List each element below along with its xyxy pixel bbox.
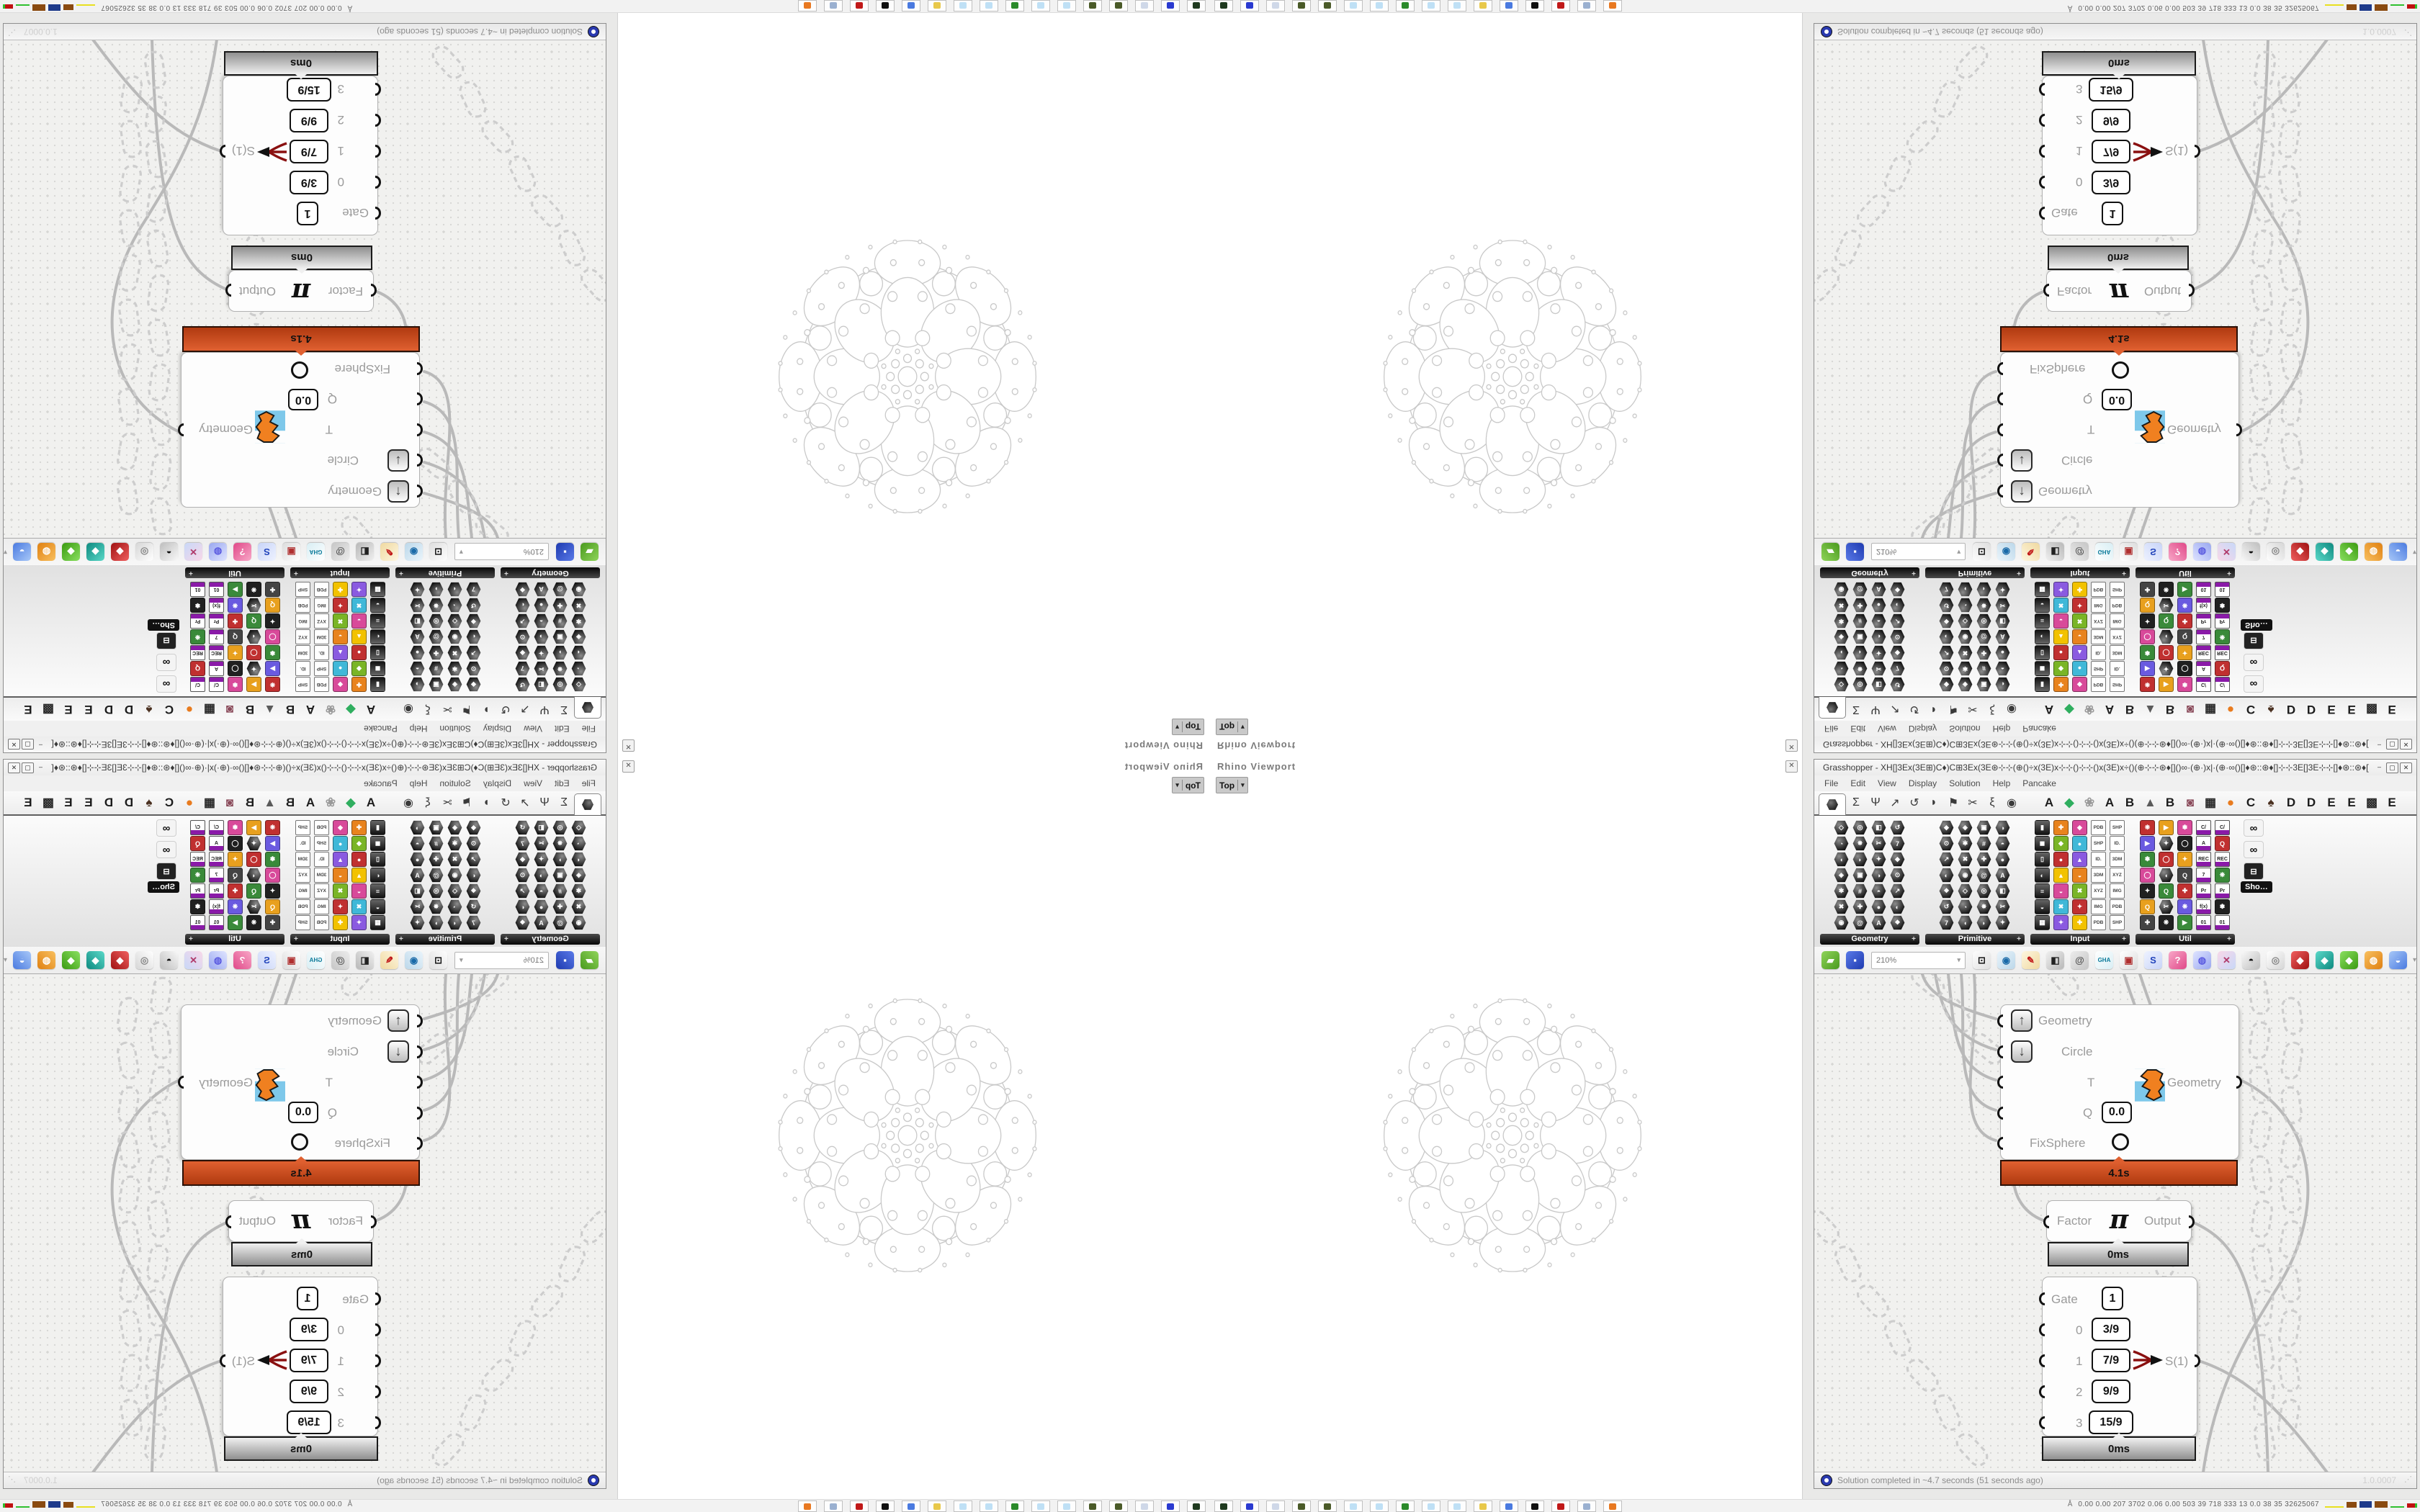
zoom-level-select[interactable]: 210% ▾ — [454, 544, 549, 561]
menu-help[interactable]: Help — [1993, 724, 2011, 734]
zoom-level-select[interactable]: 210% ▾ — [454, 952, 549, 969]
gem-orange-icon[interactable]: ◍ — [2365, 543, 2383, 561]
panel-label[interactable]: Geometry+ — [501, 934, 600, 945]
orange-globe-icon[interactable] — [798, 1500, 817, 1512]
tab-params[interactable] — [1819, 793, 1846, 815]
component-icon[interactable]: ◑ — [410, 820, 425, 835]
component-icon[interactable]: ◓ — [1995, 836, 2010, 851]
component-icon[interactable]: SHP — [295, 915, 310, 930]
component-icon[interactable]: ✽ — [2215, 899, 2230, 914]
component-icon[interactable]: 3DM — [295, 852, 310, 867]
component-icon[interactable]: ≡ — [2035, 883, 2050, 899]
component-icon[interactable]: ◆ — [466, 820, 481, 835]
gem-green-icon[interactable]: ◆ — [62, 543, 80, 561]
tab-plugin-8[interactable]: ▦ — [204, 702, 215, 716]
gate-value-box[interactable]: 1 — [297, 1287, 318, 1310]
component-icon[interactable]: ● — [1995, 645, 2010, 660]
component-icon[interactable]: REC — [2196, 852, 2211, 867]
tab-category-8[interactable]: ◉ — [2006, 702, 2017, 716]
red-gem-icon[interactable]: ◆ — [2291, 951, 2309, 969]
tab-category-2[interactable]: ↗ — [1889, 796, 1901, 810]
component-icon[interactable]: ◐ — [515, 899, 530, 914]
menu-display[interactable]: Display — [1909, 778, 1937, 788]
component-icon[interactable]: REC — [2215, 645, 2230, 660]
tab-category-7[interactable]: ξ — [422, 703, 434, 716]
component-icon[interactable]: C/ — [2215, 677, 2230, 692]
component-icon[interactable]: ◧ — [1871, 820, 1886, 835]
row-value-box[interactable]: 9/9 — [290, 1380, 328, 1403]
goggles-icon[interactable]: ∞ — [156, 819, 176, 837]
component-icon[interactable]: ▯ — [2035, 852, 2050, 867]
output-grip-geometry[interactable] — [2236, 423, 2242, 436]
tab-category-5[interactable]: ⚑ — [461, 702, 472, 716]
titlebar[interactable]: Grasshopper - XH[]3Ex(3E⊞)C♦)C⊞3Ex(3E⊛⊹⊹… — [4, 760, 606, 775]
panel-label[interactable]: Geometry+ — [1820, 934, 1919, 945]
red-gem-icon[interactable]: ◆ — [2291, 543, 2309, 561]
component-icon[interactable]: ● — [351, 645, 367, 660]
component-icon[interactable]: ✦ — [1871, 852, 1886, 867]
black-bird-icon[interactable] — [876, 0, 895, 12]
input-grip-2[interactable] — [2039, 1385, 2045, 1398]
component-stream-gate[interactable]: Gate 1 0 3/9 1 7/9 S(1) 2 9/9 3 15/9 — [2042, 1277, 2197, 1436]
component-icon[interactable]: SHP — [2110, 820, 2125, 835]
sketch-pen-icon[interactable]: ✎ — [380, 543, 398, 561]
tab-plugin-10[interactable]: C — [2245, 796, 2257, 810]
projector-screen-icon[interactable]: ⊟ — [2244, 632, 2264, 649]
q-value-box[interactable]: 0.0 — [2102, 389, 2132, 410]
tab-category-1[interactable]: Ψ — [539, 796, 550, 809]
monitor-dialog-icon[interactable] — [902, 0, 920, 12]
component-icon[interactable]: ◇ — [571, 820, 586, 835]
component-icon[interactable]: ❋ — [265, 677, 280, 692]
minimize-button[interactable]: – — [35, 762, 46, 772]
viewport-view-dropdown[interactable]: Top ▾ — [1172, 777, 1204, 793]
viewport-view-dropdown[interactable]: Top ▾ — [1172, 719, 1204, 735]
component-icon[interactable]: REC — [209, 852, 224, 867]
component-icon[interactable]: ❋ — [2215, 868, 2230, 883]
component-icon[interactable]: Pr — [2215, 613, 2230, 629]
component-icon[interactable]: ✚ — [2140, 915, 2155, 930]
component-icon[interactable]: ◔ — [447, 899, 462, 914]
component-icon[interactable]: ID. — [2091, 852, 2106, 867]
tab-plugin-2[interactable]: ❀ — [325, 796, 336, 810]
maximize-button[interactable]: ▢ — [2386, 762, 2398, 773]
input-grip-gate[interactable] — [2039, 207, 2045, 220]
menu-display[interactable]: Display — [1909, 724, 1937, 734]
component-icon[interactable]: SHP — [2091, 661, 2106, 676]
component-icon[interactable]: ✽ — [228, 820, 243, 835]
screenshot-icon[interactable]: ▣ — [2120, 951, 2138, 969]
tab-plugin-5[interactable]: ▲ — [2144, 796, 2156, 810]
component-icon[interactable]: ❖ — [515, 915, 530, 930]
component-icon[interactable]: ID. — [295, 661, 310, 676]
component-icon[interactable]: ◆ — [515, 645, 530, 660]
row-value-box[interactable]: 15/9 — [287, 78, 331, 102]
component-icon[interactable]: ✦ — [2140, 883, 2155, 899]
component-icon[interactable]: ◉ — [447, 629, 462, 644]
row-value-box[interactable]: 15/9 — [287, 1410, 331, 1434]
tab-category-8[interactable]: ◉ — [403, 702, 414, 716]
document-printer-icon[interactable] — [1266, 0, 1285, 12]
folder-icon[interactable] — [1474, 1500, 1492, 1512]
component-icon[interactable]: ✸ — [1976, 598, 1991, 613]
component-icon[interactable]: ▮ — [2035, 820, 2050, 835]
component-icon[interactable]: ◑ — [1871, 629, 1886, 644]
component-icon[interactable]: @ — [429, 868, 444, 883]
component-icon[interactable]: REC — [2196, 645, 2211, 660]
component-icon[interactable]: ◆ — [515, 852, 530, 867]
component-icon[interactable]: ✂ — [2159, 899, 2174, 914]
component-icon[interactable]: ❋ — [190, 629, 205, 644]
orange-globe-icon[interactable] — [1603, 1500, 1622, 1512]
output-grip-s1[interactable] — [220, 145, 225, 158]
component-icon[interactable]: ✚ — [429, 645, 444, 660]
save-file-icon[interactable]: ▪ — [1846, 543, 1864, 561]
component-icon[interactable]: ⊙ — [1890, 868, 1905, 883]
component-icon[interactable]: ◓ — [1871, 883, 1886, 899]
maximize-button[interactable]: ▢ — [22, 762, 34, 773]
component-icon[interactable]: ✦ — [2177, 645, 2192, 660]
component-icon[interactable]: ◔ — [447, 598, 462, 613]
component-icon[interactable]: A — [209, 836, 224, 851]
component-icon[interactable]: ID. — [2110, 836, 2125, 851]
panel-label[interactable]: Util+ — [2136, 567, 2235, 578]
component-icon[interactable]: XYZ — [2091, 613, 2106, 629]
component-circle-pack-solver[interactable]: ↑ Geometry ↓ Circle T Geometry Q 0.0 Fix… — [2000, 352, 2239, 508]
menu-pancake[interactable]: Pancake — [2022, 724, 2056, 734]
fixsphere-toggle[interactable] — [2112, 1133, 2129, 1151]
tab-plugin-14[interactable]: E — [2326, 796, 2337, 810]
component-icon[interactable]: 01 — [190, 582, 205, 597]
component-icon[interactable]: ◧ — [534, 820, 549, 835]
panel-label[interactable]: Util+ — [2136, 934, 2235, 945]
floppy-64-icon[interactable] — [1240, 1500, 1259, 1512]
component-icon[interactable]: ↗ — [466, 645, 481, 660]
input-grip-0[interactable] — [2039, 176, 2045, 189]
component-icon[interactable]: ◈ — [1834, 868, 1849, 883]
component-icon[interactable]: ✚ — [1976, 645, 1991, 660]
menu-view[interactable]: View — [524, 724, 542, 734]
input-grip-t[interactable] — [1997, 1076, 2003, 1089]
component-icon[interactable]: ✂ — [246, 899, 261, 914]
panel-label[interactable]: Input+ — [2030, 567, 2130, 578]
component-icon[interactable]: ◐ — [370, 629, 385, 644]
component-icon[interactable]: ◐ — [466, 868, 481, 883]
gem-orange-icon[interactable]: ◍ — [37, 951, 55, 969]
component-icon[interactable]: ✚ — [351, 677, 367, 692]
input-grip-3[interactable] — [2039, 83, 2045, 96]
tab-plugin-11[interactable]: ♠ — [143, 796, 155, 810]
component-icon[interactable]: ✱ — [447, 661, 462, 676]
q-value-box[interactable]: 0.0 — [2102, 1102, 2132, 1123]
input-grip-t[interactable] — [1997, 423, 2003, 436]
preview-eye-icon[interactable]: ◉ — [405, 951, 423, 969]
gem-teal-icon[interactable]: ◆ — [86, 951, 104, 969]
component-icon[interactable]: ↺ — [1890, 820, 1905, 835]
cluster-spheres-icon[interactable]: ◓ — [2242, 951, 2260, 969]
notepad-icon-3[interactable] — [980, 1500, 998, 1512]
component-icon[interactable]: ◑ — [410, 677, 425, 692]
component-icon[interactable]: ✚ — [1976, 852, 1991, 867]
tab-plugin-17[interactable]: E — [2386, 702, 2398, 716]
gem-green-icon[interactable]: ◆ — [62, 951, 80, 969]
tab-plugin-11[interactable]: ♠ — [2265, 796, 2277, 810]
tab-category-3[interactable]: ↺ — [500, 702, 511, 716]
component-icon[interactable]: ◑ — [534, 629, 549, 644]
component-icon[interactable]: 3DM — [295, 645, 310, 660]
tab-plugin-0[interactable]: A — [365, 702, 377, 716]
tab-plugin-11[interactable]: ♠ — [143, 702, 155, 716]
calculator-icon[interactable] — [824, 1500, 843, 1512]
component-icon[interactable]: 7 — [2196, 629, 2211, 644]
screenshot-icon[interactable]: ▣ — [2120, 543, 2138, 561]
component-icon[interactable]: ⊙ — [1939, 661, 1954, 676]
component-icon[interactable]: ● — [410, 852, 425, 867]
tab-plugin-15[interactable]: E — [63, 796, 74, 810]
gem-blue-icon[interactable]: ◒ — [13, 543, 31, 561]
tab-plugin-14[interactable]: E — [2326, 702, 2337, 716]
component-icon[interactable]: ❋ — [2159, 582, 2174, 597]
component-icon[interactable]: ▲ — [351, 868, 367, 883]
component-icon[interactable]: ✂ — [410, 598, 425, 613]
component-icon[interactable]: ✽ — [2215, 598, 2230, 613]
viewport-close-icon[interactable]: ✕ — [622, 760, 635, 773]
tab-plugin-2[interactable]: ❀ — [2084, 702, 2095, 716]
zoom-extents-icon[interactable]: ⊡ — [1973, 951, 1991, 969]
component-icon[interactable]: ● — [2053, 852, 2069, 867]
screenshot-icon[interactable]: ▣ — [282, 951, 300, 969]
row-value-box[interactable]: 7/9 — [290, 1349, 328, 1372]
component-icon[interactable]: @ — [1976, 868, 1991, 883]
component-icon[interactable]: ◆ — [1939, 677, 1954, 692]
component-icon[interactable]: ❋ — [265, 820, 280, 835]
galapagos-balloon-icon[interactable]: ◍ — [209, 543, 227, 561]
component-icon[interactable]: ▶ — [2159, 820, 2174, 835]
component-icon[interactable]: ◎ — [429, 613, 444, 629]
component-icon[interactable]: ✦ — [2072, 899, 2087, 914]
tab-category-0[interactable]: Σ — [1850, 796, 1862, 809]
component-icon[interactable]: Pr — [190, 613, 205, 629]
save-file-icon[interactable]: ▪ — [1846, 951, 1864, 969]
component-icon[interactable]: ✦ — [228, 852, 243, 867]
input-grip-gate[interactable] — [2039, 1292, 2045, 1305]
component-icon[interactable]: ID. — [314, 645, 329, 660]
flatten-arrow-down-icon[interactable]: ↓ — [2011, 449, 2033, 472]
gpu-widget-icon[interactable] — [1214, 1500, 1233, 1512]
terminal-monitor-icon[interactable] — [1005, 0, 1024, 12]
resize-grip[interactable]: ⋰ — [8, 28, 16, 37]
component-icon[interactable]: ◆ — [1939, 820, 1954, 835]
tab-plugin-9[interactable]: ● — [184, 702, 195, 716]
goggles-icon-2[interactable]: ∞ — [156, 654, 176, 671]
component-icon[interactable]: C/ — [209, 677, 224, 692]
component-icon[interactable]: ▣ — [1852, 868, 1868, 883]
component-icon[interactable]: ◼ — [370, 836, 385, 851]
notepad-icon[interactable] — [1057, 1500, 1076, 1512]
component-icon[interactable]: ◒ — [351, 883, 367, 899]
component-icon[interactable]: ◼ — [2035, 836, 2050, 851]
component-icon[interactable]: PDB — [295, 899, 310, 914]
component-icon[interactable]: ↗ — [515, 613, 530, 629]
notepad-icon-3[interactable] — [980, 0, 998, 12]
tab-plugin-9[interactable]: ● — [184, 796, 195, 810]
component-icon[interactable]: ✸ — [1852, 836, 1868, 851]
tab-category-6[interactable]: ✂ — [442, 796, 453, 810]
component-icon[interactable]: 01 — [2196, 582, 2211, 597]
component-icon[interactable]: PDB — [2091, 820, 2106, 835]
component-icon[interactable]: SHP — [2091, 836, 2106, 851]
component-icon[interactable]: ◔ — [1834, 661, 1849, 676]
tab-category-5[interactable]: ⚑ — [1948, 796, 1959, 810]
red-wheel-icon[interactable] — [850, 0, 869, 12]
panel-label[interactable]: Primitive+ — [395, 934, 495, 945]
component-icon[interactable]: ◇ — [1834, 820, 1849, 835]
folder-icon[interactable] — [1474, 0, 1492, 12]
component-icon[interactable]: ✖ — [2072, 613, 2087, 629]
zoom-level-select[interactable]: 210% ▾ — [1871, 952, 1966, 969]
component-icon[interactable]: ✖ — [1958, 852, 1973, 867]
row-value-box[interactable]: 7/9 — [290, 140, 328, 163]
gift-package-icon[interactable]: ? — [233, 951, 251, 969]
component-icon[interactable]: ◯ — [2159, 645, 2174, 660]
fixsphere-toggle[interactable] — [291, 361, 308, 379]
component-icon[interactable]: 7 — [209, 868, 224, 883]
component-icon[interactable]: ◇ — [447, 883, 462, 899]
menu-edit[interactable]: Edit — [1850, 724, 1865, 734]
component-icon[interactable]: Q — [2215, 836, 2230, 851]
component-icon[interactable]: ◎ — [1852, 820, 1868, 835]
component-icon[interactable]: IMG — [2110, 883, 2125, 899]
tab-params[interactable] — [574, 697, 601, 719]
gpu-widget-icon[interactable] — [1187, 1500, 1206, 1512]
component-icon[interactable]: ✽ — [2177, 677, 2192, 692]
component-icon[interactable]: ◆ — [466, 677, 481, 692]
component-icon[interactable]: ✚ — [2140, 582, 2155, 597]
component-icon[interactable]: ⊙ — [515, 629, 530, 644]
viewport-close-icon[interactable]: ✕ — [1785, 739, 1798, 752]
component-icon[interactable]: ◯ — [228, 661, 243, 676]
cross-reference-icon[interactable]: ✕ — [2218, 951, 2236, 969]
component-icon[interactable]: ◒ — [2072, 629, 2087, 644]
panel-label[interactable]: Input+ — [290, 934, 390, 945]
menu-edit[interactable]: Edit — [1850, 778, 1865, 788]
black-bird-icon[interactable] — [876, 1500, 895, 1512]
component-icon[interactable]: ▶ — [265, 661, 280, 676]
component-icon[interactable]: SHP — [295, 820, 310, 835]
component-icon[interactable]: C/ — [190, 677, 205, 692]
component-icon[interactable]: ◎ — [552, 820, 568, 835]
component-icon[interactable]: ◯ — [2159, 852, 2174, 867]
notepad-icon-2[interactable] — [1031, 1500, 1050, 1512]
gem-blue-icon[interactable]: ◒ — [2389, 951, 2407, 969]
component-icon[interactable]: ✚ — [265, 582, 280, 597]
goggles-icon-2[interactable]: ∞ — [156, 841, 176, 858]
zoom-level-select[interactable]: 210% ▾ — [1871, 544, 1966, 561]
component-icon[interactable]: IMG — [314, 899, 329, 914]
component-icon[interactable]: ● — [534, 598, 549, 613]
component-icon[interactable]: ✽ — [2140, 645, 2155, 660]
tab-plugin-14[interactable]: E — [83, 796, 94, 810]
moss-ball-icon-2[interactable] — [1318, 1500, 1337, 1512]
tab-category-6[interactable]: ✂ — [442, 702, 453, 716]
input-grip-gate[interactable] — [375, 1292, 381, 1305]
component-icon[interactable]: ↗ — [1890, 883, 1905, 899]
row-value-box[interactable]: 3/9 — [290, 171, 328, 194]
menu-file[interactable]: File — [582, 778, 596, 788]
component-icon[interactable]: Q — [2177, 868, 2192, 883]
component-icon[interactable]: # — [1852, 613, 1868, 629]
gha-assembly-icon[interactable]: GHA — [307, 543, 325, 561]
row-value-box[interactable]: 3/9 — [290, 1318, 328, 1341]
component-icon[interactable]: ✚ — [2072, 582, 2087, 597]
moss-ball-icon[interactable] — [1109, 0, 1128, 12]
tab-plugin-7[interactable]: ◙ — [224, 702, 236, 716]
component-icon[interactable]: ◒ — [2035, 899, 2050, 914]
tab-plugin-3[interactable]: A — [2104, 702, 2115, 716]
component-icon[interactable]: ◒ — [2072, 868, 2087, 883]
input-grip-geometry[interactable] — [1997, 1014, 2003, 1027]
component-icon[interactable]: ◒ — [2053, 883, 2069, 899]
red-wheel-icon[interactable] — [1551, 1500, 1570, 1512]
component-icon[interactable]: ▶ — [2177, 582, 2192, 597]
component-icon[interactable]: ✦ — [2159, 661, 2174, 676]
component-icon[interactable]: ◔ — [571, 661, 586, 676]
component-icon[interactable]: ✸ — [1976, 899, 1991, 914]
component-stream-gate[interactable]: Gate 1 0 3/9 1 7/9 S(1) 2 9/9 3 15/9 — [223, 76, 378, 235]
component-icon[interactable]: ◧ — [1871, 677, 1886, 692]
document-printer-icon[interactable] — [1266, 1500, 1285, 1512]
output-grip-geometry[interactable] — [178, 423, 184, 436]
component-icon[interactable]: ◆ — [2053, 836, 2069, 851]
find-component-icon[interactable]: S — [258, 951, 276, 969]
component-icon[interactable]: ✂ — [410, 899, 425, 914]
cluster-spheres-icon[interactable]: ◓ — [160, 951, 178, 969]
tab-plugin-9[interactable]: ● — [2225, 702, 2236, 716]
component-icon[interactable]: Q — [2140, 899, 2155, 914]
component-icon[interactable]: ⊙ — [515, 868, 530, 883]
tab-plugin-11[interactable]: ♠ — [2265, 702, 2277, 716]
rings-icon[interactable]: ◎ — [2267, 543, 2285, 561]
component-icon[interactable]: ❋ — [190, 868, 205, 883]
component-icon[interactable]: ▶ — [246, 677, 261, 692]
component-icon[interactable]: ↗ — [515, 883, 530, 899]
notepad-icon-2[interactable] — [1370, 1500, 1389, 1512]
component-icon[interactable]: ▲ — [2072, 645, 2087, 660]
component-icon[interactable]: SHP — [314, 661, 329, 676]
component-icon[interactable]: ◉ — [571, 915, 586, 930]
projector-screen-icon[interactable]: ⊟ — [156, 863, 176, 880]
component-icon[interactable]: Q — [190, 836, 205, 851]
component-icon[interactable]: SHP — [2110, 677, 2125, 692]
component-icon[interactable]: ✦ — [246, 661, 261, 676]
component-icon[interactable]: ❋ — [2177, 899, 2192, 914]
component-icon[interactable]: ✚ — [2072, 915, 2087, 930]
notepad-icon[interactable] — [1344, 1500, 1363, 1512]
output-grip-s1[interactable] — [220, 1354, 225, 1367]
goggles-icon[interactable]: ∞ — [156, 675, 176, 693]
component-icon[interactable]: ✚ — [228, 613, 243, 629]
component-icon[interactable]: ◔ — [1958, 899, 1973, 914]
component-icon[interactable]: f(x) — [2196, 899, 2211, 914]
component-icon[interactable]: f(x) — [209, 899, 224, 914]
q-value-box[interactable]: 0.0 — [288, 389, 318, 410]
notepad-icon-2[interactable] — [1370, 0, 1389, 12]
component-icon[interactable]: ≡ — [370, 613, 385, 629]
component-icon[interactable]: ◈ — [571, 629, 586, 644]
component-icon[interactable]: Q — [246, 883, 261, 899]
component-icon[interactable]: XYZ — [314, 883, 329, 899]
component-icon[interactable]: ▦ — [370, 915, 385, 930]
